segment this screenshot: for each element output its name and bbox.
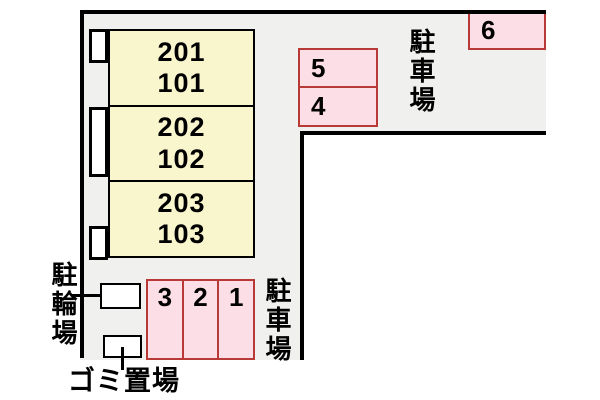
outline-inner-horizontal-edge (300, 131, 546, 135)
site-plan: { "diagram": { "building": { "rooms": [ … (0, 0, 600, 400)
parking-space-5: 5 (298, 48, 378, 88)
outline-top-edge (80, 10, 546, 14)
outline-inner-vertical-edge (300, 131, 304, 360)
room-number-lower: 102 (157, 144, 205, 175)
parking-space-number: 5 (311, 53, 325, 84)
room-unit-203-103: 203 103 (110, 182, 253, 256)
parking-space-3: 3 (148, 281, 184, 358)
entrance-porch-middle (89, 107, 108, 177)
room-number-lower: 101 (157, 68, 205, 99)
parking-lot-label-bottom: 駐車場 (259, 277, 296, 364)
entrance-porch-top (89, 29, 108, 63)
parking-space-number: 3 (158, 282, 172, 313)
parking-space-6: 6 (468, 11, 546, 50)
parking-row-bottom: 3 2 1 (146, 279, 255, 360)
apartment-building: 201 101 202 102 203 103 (108, 29, 255, 258)
room-number-upper: 203 (157, 188, 205, 219)
parking-space-number: 1 (229, 282, 243, 313)
room-number-upper: 201 (157, 37, 205, 68)
room-number-lower: 103 (157, 219, 205, 250)
parking-space-number: 2 (193, 282, 207, 313)
room-number-upper: 202 (157, 112, 205, 143)
parking-space-1: 1 (219, 281, 253, 358)
parking-lot-label-top: 駐車場 (403, 28, 440, 115)
parking-space-number: 4 (311, 91, 325, 122)
parking-space-number: 6 (481, 15, 495, 46)
parking-space-2: 2 (184, 281, 220, 358)
room-unit-201-101: 201 101 (110, 31, 253, 107)
bicycle-parking-label: 駐輪場 (45, 261, 82, 348)
parking-space-4: 4 (298, 86, 378, 127)
garbage-area-label: ゴミ置場 (68, 359, 180, 398)
garbage-label-connector-line (121, 347, 124, 370)
bicycle-label-connector-line (72, 294, 102, 297)
room-unit-202-102: 202 102 (110, 107, 253, 183)
bicycle-parking-box (100, 283, 141, 309)
entrance-porch-bottom (89, 226, 108, 260)
